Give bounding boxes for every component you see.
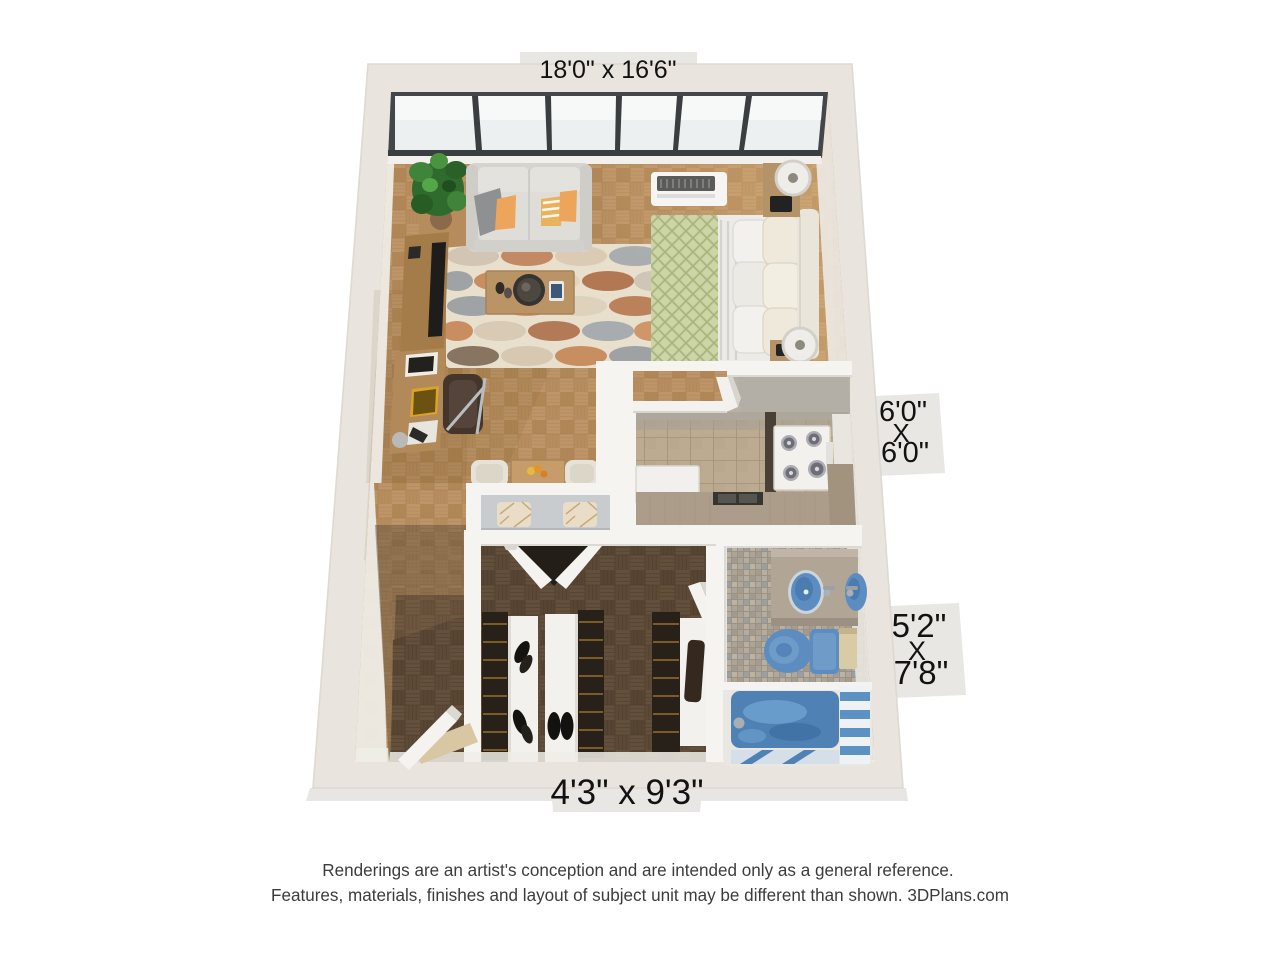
svg-text:Renderings are an artist's con: Renderings are an artist's conception an… (322, 861, 953, 880)
svg-text:6'0": 6'0" (881, 437, 929, 469)
svg-text:18'0" x 16'6": 18'0" x 16'6" (539, 56, 676, 84)
svg-text:7'8": 7'8" (894, 654, 949, 691)
svg-text:4'3" x 9'3": 4'3" x 9'3" (550, 773, 703, 812)
svg-text:Features, materials, finishes: Features, materials, finishes and layout… (271, 886, 1009, 905)
